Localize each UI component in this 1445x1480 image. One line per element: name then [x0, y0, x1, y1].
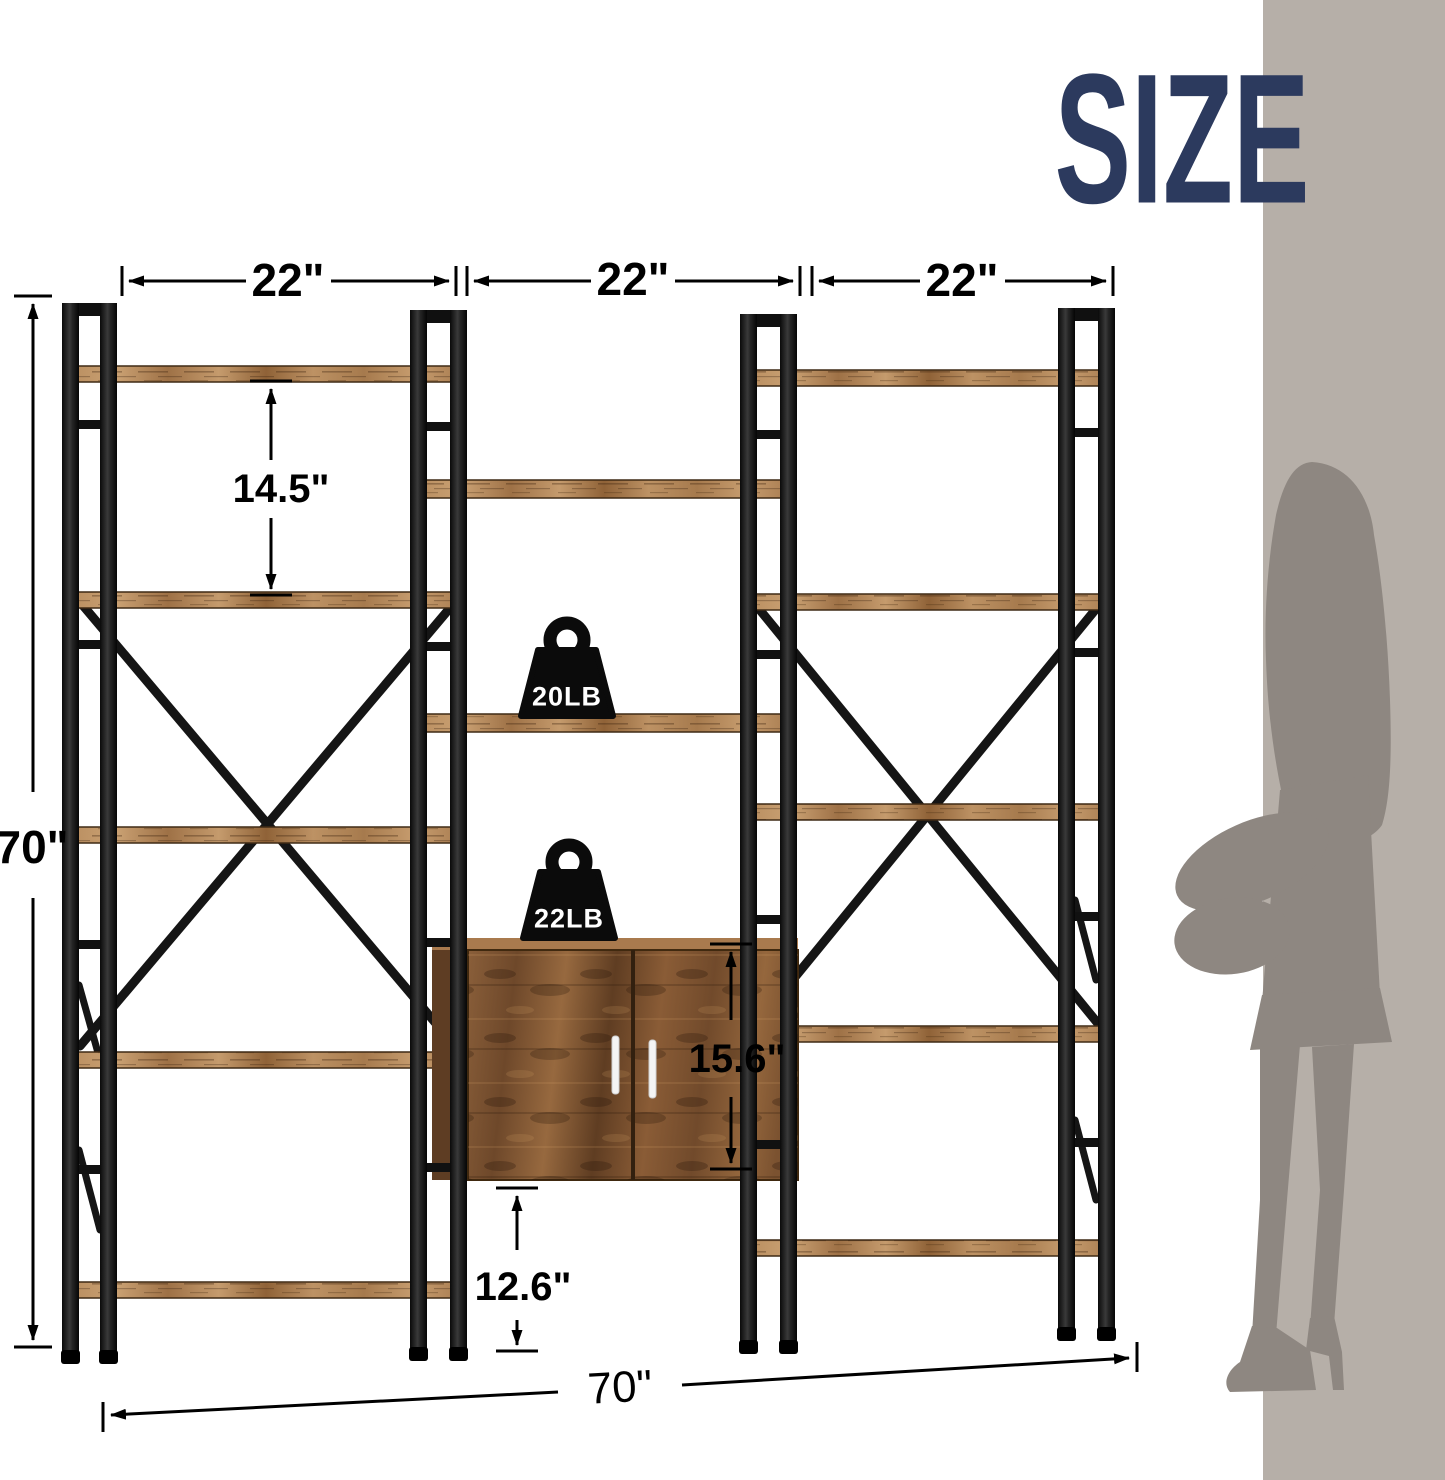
silhouette-front-leg — [1252, 1045, 1300, 1335]
person-silhouette — [1161, 462, 1392, 1392]
tower-far-right — [1057, 308, 1116, 1341]
dim-width-middle-label: 22" — [597, 256, 670, 302]
silhouette-skirt — [1250, 988, 1392, 1050]
cabinet-door-seam — [631, 950, 635, 1180]
frame-post — [780, 314, 797, 1350]
tower-mid-right — [739, 314, 798, 1354]
weight-22lb-label: 22LB — [534, 906, 604, 933]
silhouette-back-leg — [1310, 1044, 1354, 1327]
cabinet-door-handle — [612, 1036, 619, 1094]
frame-post — [100, 303, 117, 1360]
dim-width-left-label: 22" — [252, 257, 325, 303]
product-size-diagram: SIZE 22" 22" 22" 70" 14.5" 15.6" 12.6" 7… — [0, 0, 1445, 1480]
frame-post — [1058, 308, 1075, 1337]
frame-post — [740, 314, 757, 1350]
cabinet-door-handle — [649, 1040, 656, 1098]
silhouette-front-shoe — [1226, 1326, 1316, 1392]
dim-bottom-clearance-label: 12.6" — [475, 1267, 572, 1307]
frame-post — [410, 310, 427, 1357]
dim-cabinet-height-label: 15.6" — [689, 1039, 786, 1079]
weight-icons — [521, 623, 615, 938]
dim-shelf-spacing-label: 14.5" — [233, 469, 330, 509]
weight-20lb-label: 20LB — [532, 684, 602, 711]
right-section-shelves — [748, 370, 1110, 1256]
frame-post — [450, 310, 467, 1357]
dim-height-label: 70" — [0, 824, 68, 870]
size-title: SIZE — [1055, 48, 1310, 233]
dim-width-right-label: 22" — [926, 257, 999, 303]
dim-total-width-label: 70" — [586, 1364, 653, 1412]
frame-post — [1098, 308, 1115, 1337]
